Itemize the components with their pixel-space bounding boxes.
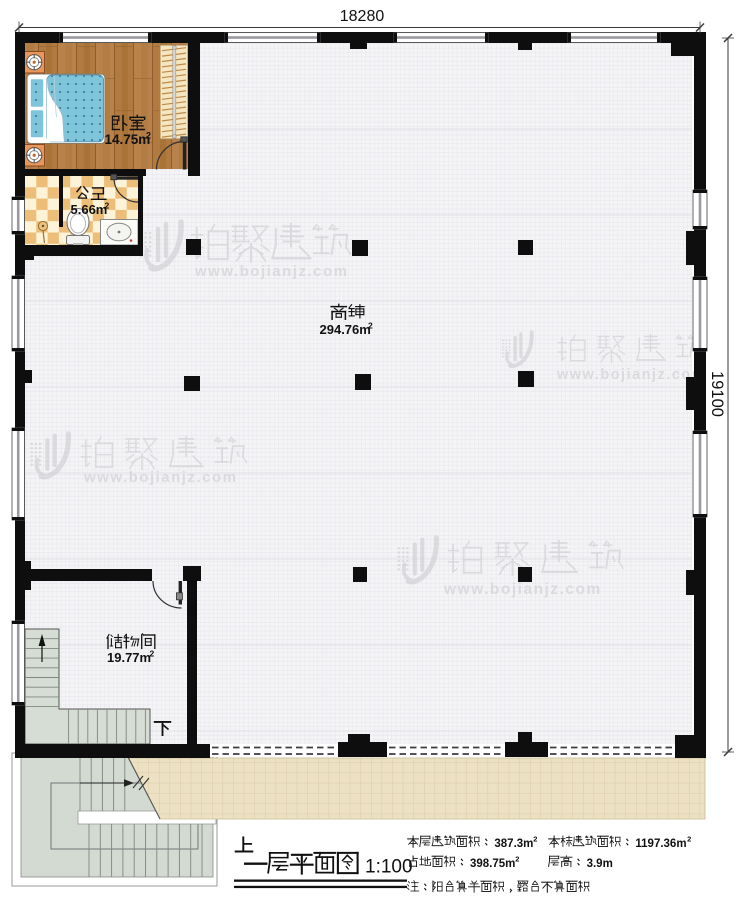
svg-text:2: 2 xyxy=(368,321,373,331)
svg-text:1:100: 1:100 xyxy=(365,857,413,878)
svg-text:19100: 19100 xyxy=(708,371,726,417)
svg-text:398.75m: 398.75m xyxy=(470,858,515,870)
svg-text:1197.36m: 1197.36m xyxy=(635,838,686,850)
svg-text:www.bojianjz.com: www.bojianjz.com xyxy=(556,367,706,383)
svg-text:5.66m: 5.66m xyxy=(71,202,108,217)
svg-text:www.bojianjz.com: www.bojianjz.com xyxy=(443,581,602,598)
svg-text:387.3m: 387.3m xyxy=(494,838,533,850)
svg-text:www.bojianjz.com: www.bojianjz.com xyxy=(83,469,237,486)
svg-text:18280: 18280 xyxy=(340,8,385,25)
svg-text:2: 2 xyxy=(515,855,519,864)
svg-text:2: 2 xyxy=(533,835,537,844)
svg-text:2: 2 xyxy=(105,201,110,211)
svg-text:2: 2 xyxy=(150,649,155,659)
svg-text:14.75m: 14.75m xyxy=(105,132,151,147)
svg-text:www.bojianjz.com: www.bojianjz.com xyxy=(194,263,348,280)
svg-text:2: 2 xyxy=(687,835,691,844)
svg-text:19.77m: 19.77m xyxy=(107,650,151,665)
svg-text:2: 2 xyxy=(146,131,151,141)
svg-text:294.76m: 294.76m xyxy=(320,322,371,337)
svg-text:3.9m: 3.9m xyxy=(587,858,613,870)
